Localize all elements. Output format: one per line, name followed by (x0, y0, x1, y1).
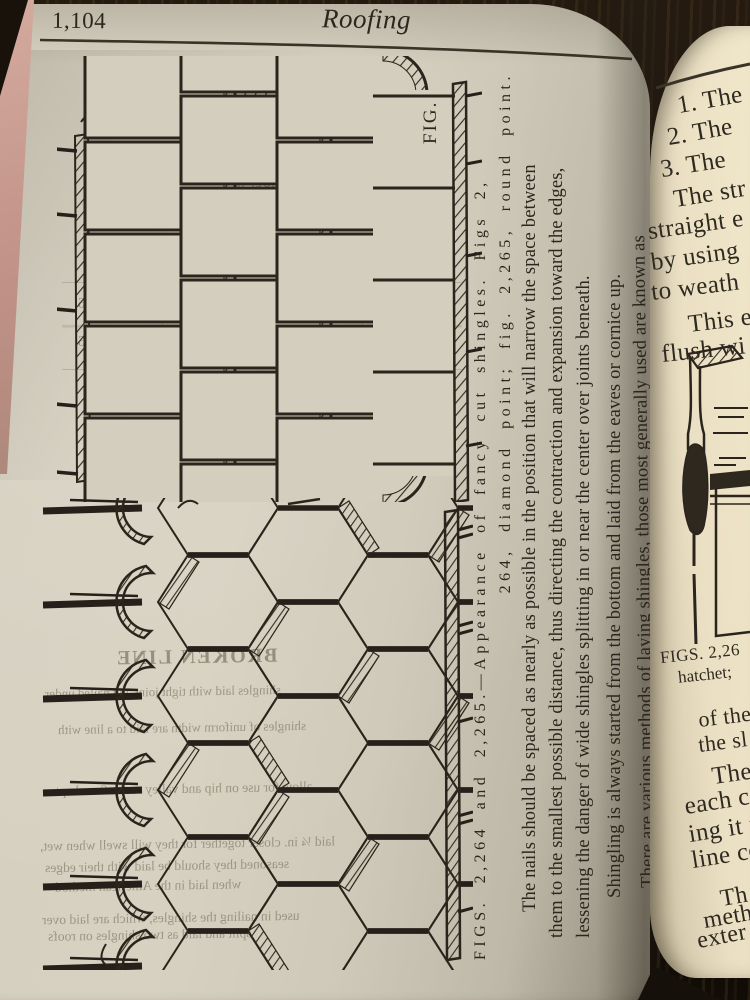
figure-caption-line1: FIGS. 2,264 and 2,265.—Appearance of fan… (472, 178, 490, 960)
fig-2265-round-point-drawing (57, 56, 482, 502)
hatchet-figure-drawing (666, 338, 750, 650)
fig-2264-diamond-point-drawing (28, 498, 473, 970)
figure-caption-line2: 264, diamond point; fig. 2,265, round po… (497, 72, 515, 960)
book-photo: 1,104 Roofing be followed for roofs of m… (0, 0, 750, 1000)
body-text-line: The nails should be spaced as nearly as … (520, 52, 541, 938)
right-page-rule (0, 0, 750, 120)
body-text-line: them to the smallest possible distance, … (547, 52, 568, 938)
body-text-line: lessening the danger of wide shingles sp… (574, 52, 595, 938)
